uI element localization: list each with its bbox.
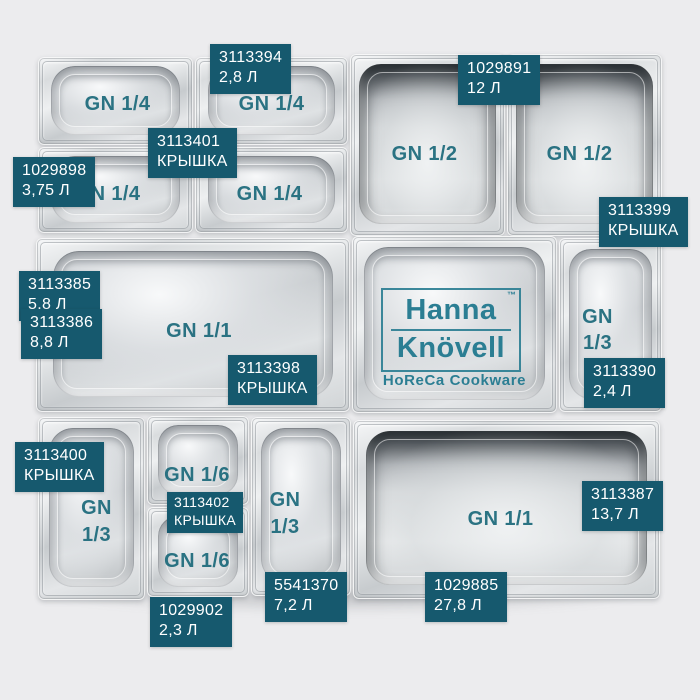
product-code: 3113385 — [28, 275, 91, 295]
trademark-symbol: ™ — [507, 290, 516, 300]
product-code: 3113402 — [174, 494, 236, 512]
product-label: 3113399 КРЫШКА — [599, 197, 688, 247]
product-volume: 2,3 Л — [159, 621, 223, 641]
product-code: 3113390 — [593, 362, 656, 382]
product-code: 3113386 — [30, 313, 93, 333]
brand-name-line2: Knövell — [397, 334, 505, 364]
product-label: 3113386 8,8 Л — [21, 309, 102, 359]
product-label: 3113390 2,4 Л — [584, 358, 665, 408]
product-label: 1029898 3,75 Л — [13, 157, 95, 207]
product-code: 3113394 — [219, 48, 282, 68]
product-label: 3113401 КРЫШКА — [148, 128, 237, 178]
product-volume: 2,4 Л — [593, 382, 656, 402]
product-volume: 7,2 Л — [274, 596, 338, 616]
product-code: 3113400 — [24, 446, 95, 466]
product-label: 3113398 КРЫШКА — [228, 355, 317, 405]
product-code: 5541370 — [274, 576, 338, 596]
brand-logo: ™ Hanna Knövell — [381, 288, 521, 372]
product-volume: 2,8 Л — [219, 68, 282, 88]
pan-gn13-row3-mid: GN 1/3 — [251, 417, 351, 596]
product-volume: 12 Л — [467, 79, 531, 99]
product-type: КРЫШКА — [174, 512, 236, 530]
product-code: 1029902 — [159, 601, 223, 621]
product-label: 1029891 12 Л — [458, 55, 540, 105]
brand-tagline: HoReCa Cookware — [342, 372, 567, 389]
product-label: 3113402 КРЫШКА — [167, 492, 243, 533]
logo-divider — [391, 329, 511, 331]
product-volume: 13,7 Л — [591, 505, 654, 525]
product-type: КРЫШКА — [157, 152, 228, 172]
product-label: 1029902 2,3 Л — [150, 597, 232, 647]
product-label: 1029885 27,8 Л — [425, 572, 507, 622]
product-volume: 8,8 Л — [30, 333, 93, 353]
product-type: КРЫШКА — [237, 379, 308, 399]
product-label: 3113400 КРЫШКА — [15, 442, 104, 492]
product-code: 3113387 — [591, 485, 654, 505]
product-code: 1029891 — [467, 59, 531, 79]
product-type: КРЫШКА — [608, 221, 679, 241]
brand-name-line1: Hanna — [405, 296, 496, 326]
product-volume: 27,8 Л — [434, 596, 498, 616]
product-label: 3113387 13,7 Л — [582, 481, 663, 531]
product-code: 3113399 — [608, 201, 679, 221]
product-code: 1029885 — [434, 576, 498, 596]
product-code: 3113401 — [157, 132, 228, 152]
product-label: 3113394 2,8 Л — [210, 44, 291, 94]
product-label: 5541370 7,2 Л — [265, 572, 347, 622]
pan-logo: ™ Hanna Knövell HoReCa Cookware — [352, 236, 557, 413]
product-photo: GN 1/4 GN 1/4 GN 1/4 GN 1/4 GN 1/2 GN 1/… — [0, 0, 700, 700]
product-code: 3113398 — [237, 359, 308, 379]
product-type: КРЫШКА — [24, 466, 95, 486]
product-volume: 3,75 Л — [22, 181, 86, 201]
product-code: 1029898 — [22, 161, 86, 181]
